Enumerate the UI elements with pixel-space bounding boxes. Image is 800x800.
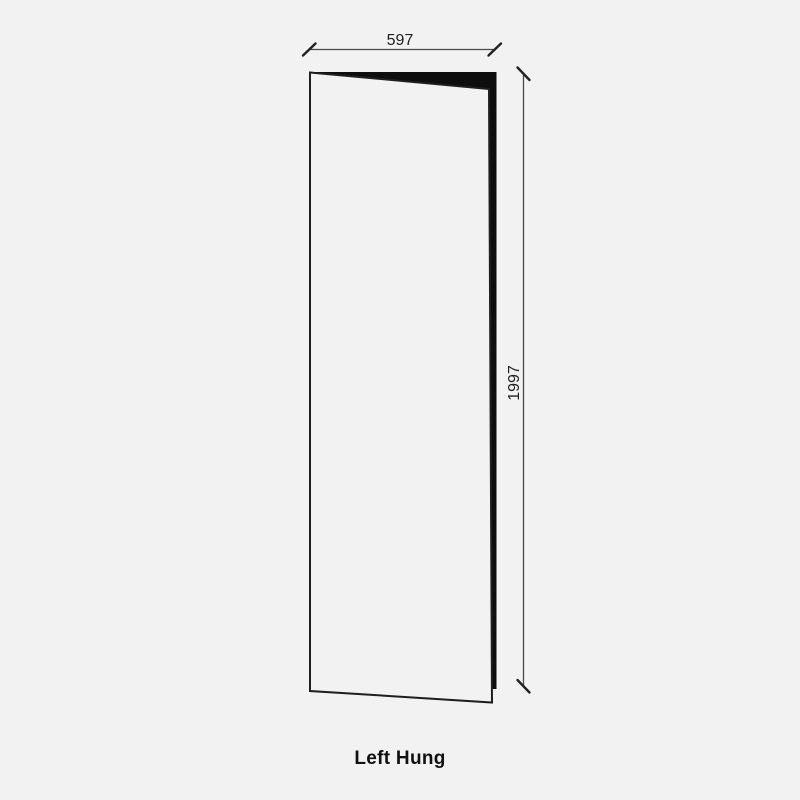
width-dimension-label: 597 bbox=[387, 32, 414, 49]
height-dimension: 1997 bbox=[506, 68, 530, 693]
door-swing-diagram: 597 1997 Left Hung bbox=[0, 0, 800, 800]
door-swing-diagram-canvas: 597 1997 Left Hung bbox=[0, 0, 800, 800]
door-panel bbox=[310, 72, 497, 703]
height-dimension-label: 1997 bbox=[506, 365, 523, 401]
diagram-title: Left Hung bbox=[354, 748, 445, 769]
width-dimension: 597 bbox=[303, 32, 501, 56]
door-front-face bbox=[310, 73, 492, 703]
